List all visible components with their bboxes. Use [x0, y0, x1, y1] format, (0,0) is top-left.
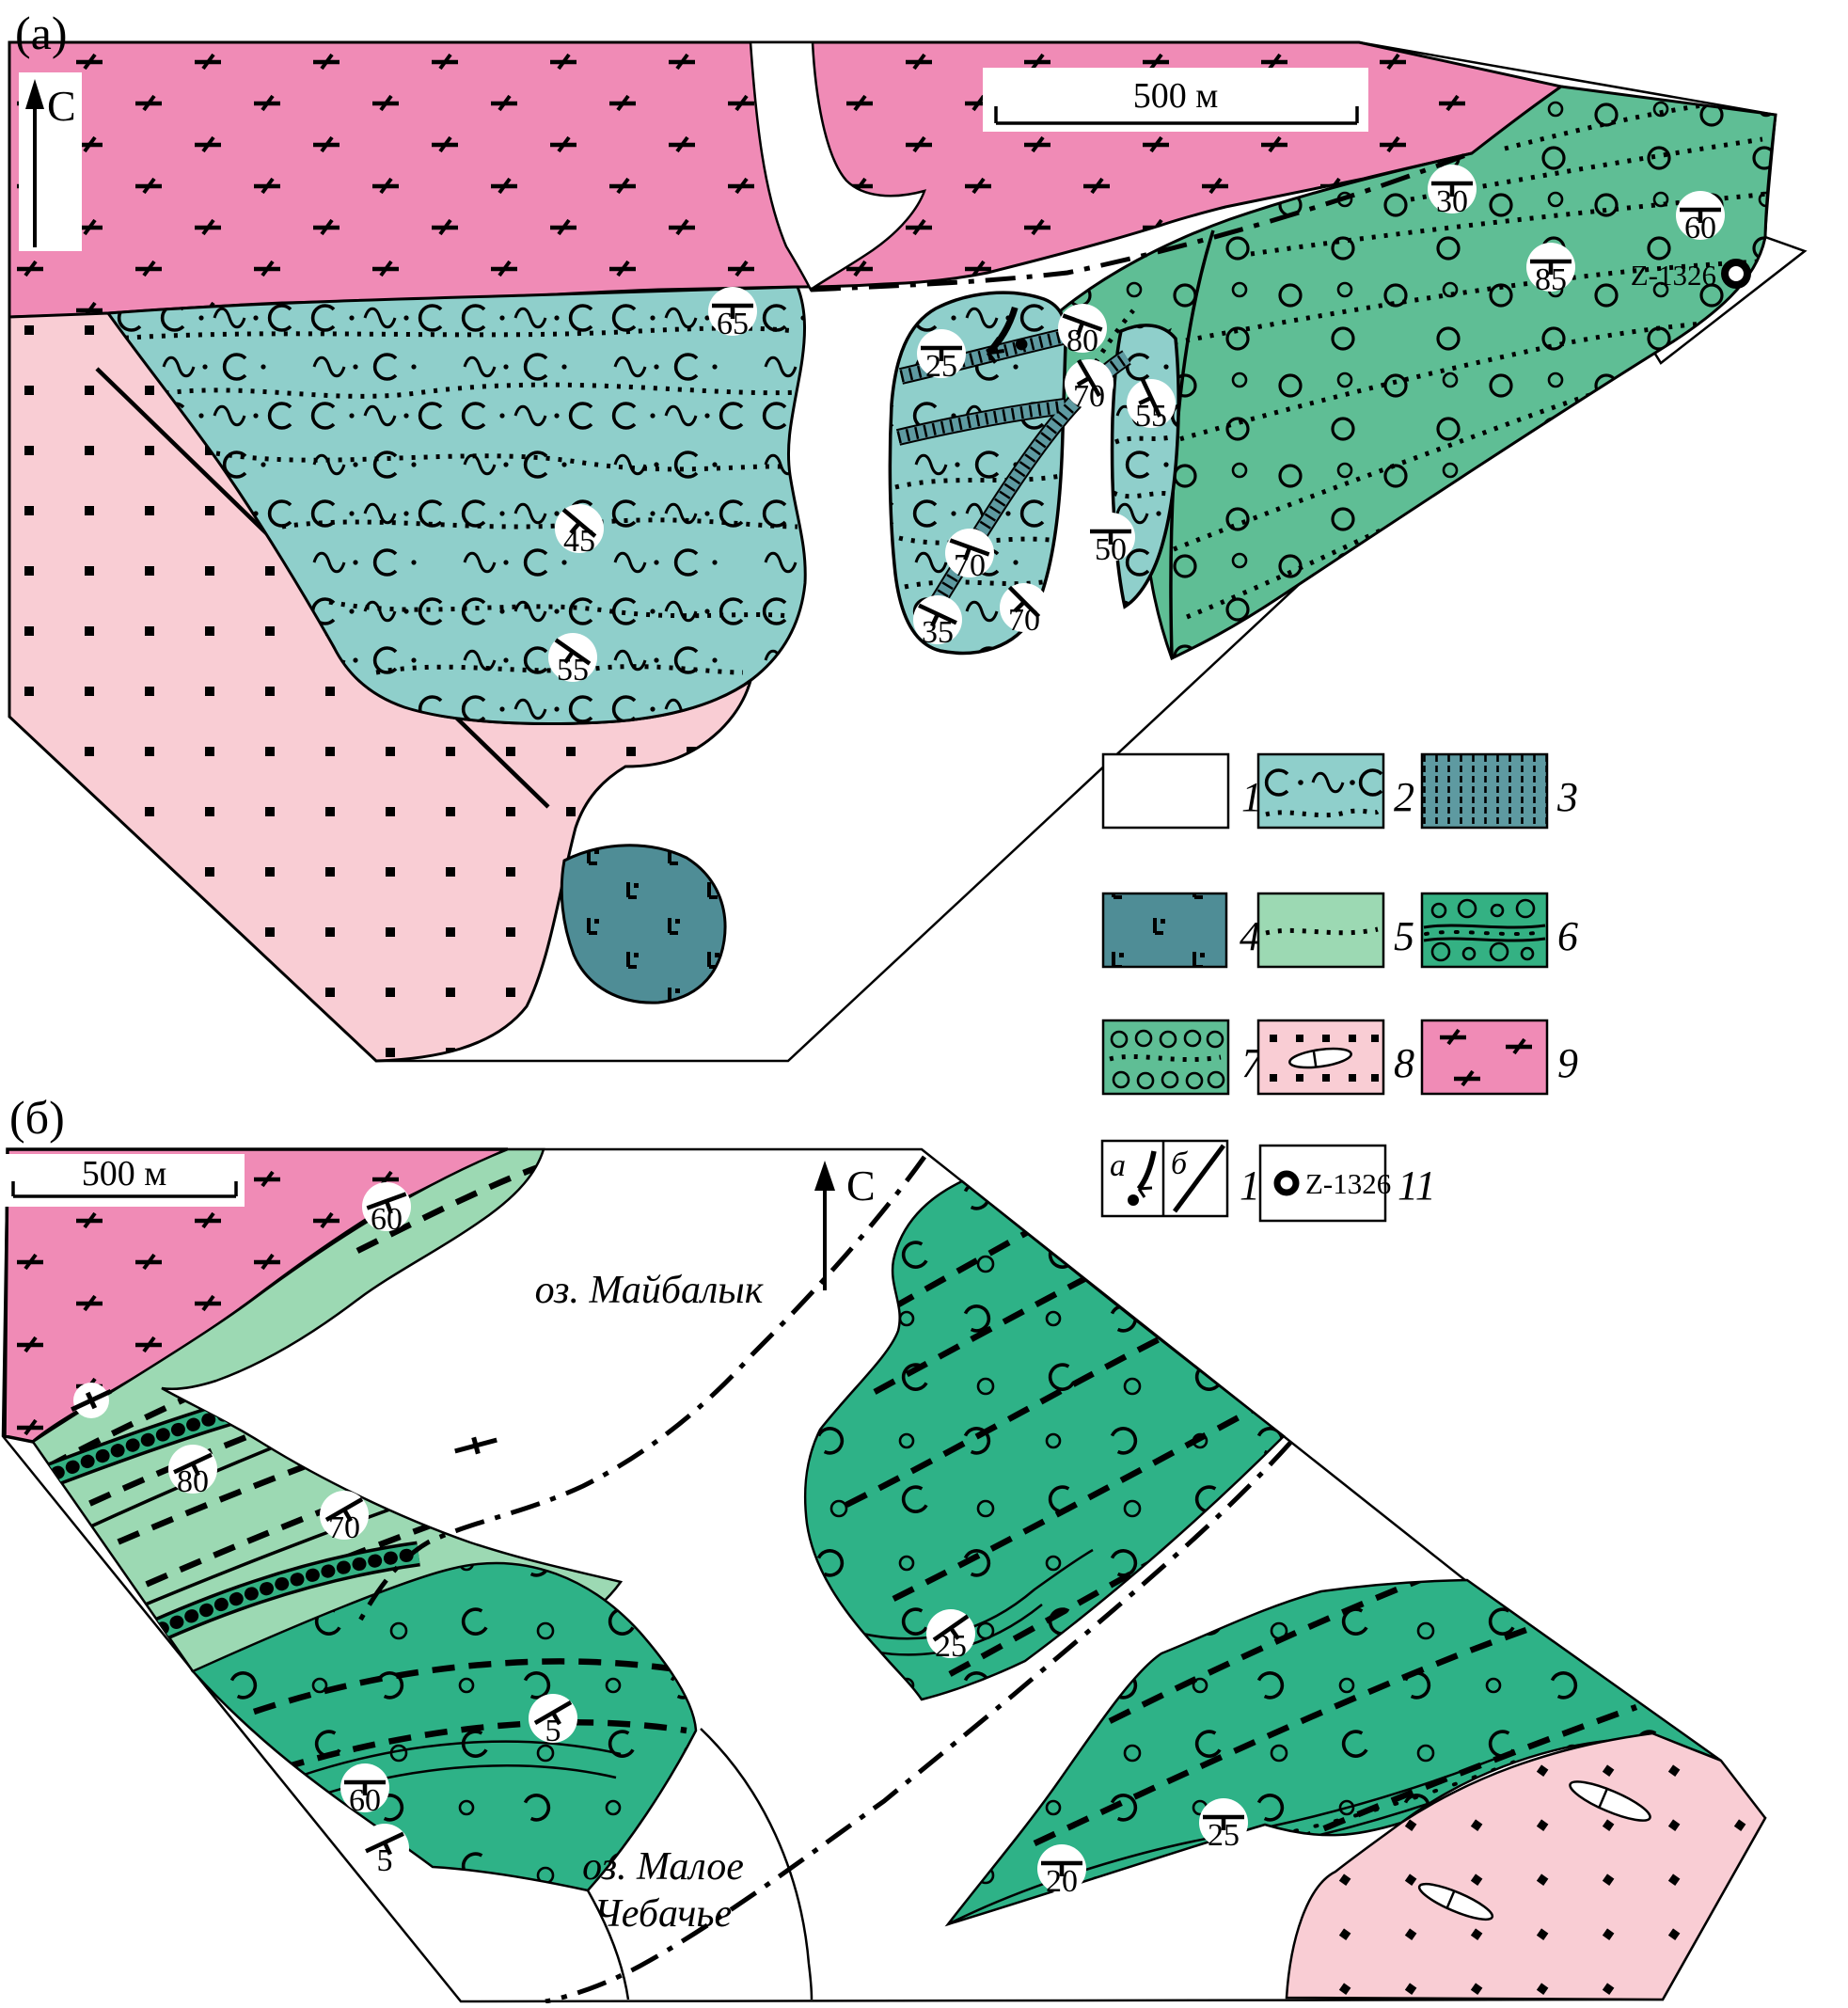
- svg-text:50: 50: [1095, 532, 1127, 567]
- legend-item-1: 1: [1103, 754, 1262, 828]
- legend-number-6: 6: [1557, 913, 1578, 959]
- legend-item-8: 8: [1258, 1020, 1414, 1094]
- legend-item-9: 9: [1422, 1020, 1578, 1094]
- lake-label-maloe-1: оз. Малое: [582, 1845, 744, 1889]
- svg-text:55: 55: [1135, 399, 1167, 434]
- svg-text:80: 80: [177, 1464, 209, 1499]
- geologic-map-figure: Z-1326 С 500 м (a) 652580705545555070357…: [0, 0, 1848, 2003]
- svg-text:25: 25: [1208, 1818, 1240, 1853]
- scale-label-b: 500 м: [82, 1154, 167, 1194]
- legend-number-5: 5: [1394, 913, 1414, 959]
- svg-text:65: 65: [717, 307, 749, 341]
- svg-text:70: 70: [954, 548, 986, 583]
- panel-label-a: (a): [15, 7, 68, 59]
- legend-number-2: 2: [1394, 774, 1414, 820]
- lake-label-maloe-2: Чебачье: [594, 1892, 732, 1936]
- panel-b: С 500 м (б) оз. Майбалык оз. Малое Чебач…: [3, 1091, 1765, 2001]
- svg-text:5: 5: [377, 1843, 393, 1878]
- legend-item-2: 2: [1258, 754, 1414, 828]
- legend-number-8: 8: [1394, 1040, 1414, 1086]
- legend-item-3: 3: [1422, 754, 1578, 828]
- svg-text:35: 35: [922, 615, 954, 650]
- svg-text:5: 5: [545, 1714, 561, 1748]
- legend-item-10: а б 10: [1102, 1141, 1281, 1216]
- legend-sub-b: б: [1171, 1146, 1189, 1181]
- lake-label-maybalyk: оз. Майбалык: [535, 1269, 764, 1312]
- svg-text:45: 45: [563, 524, 595, 559]
- legend-sample-label: Z-1326: [1305, 1167, 1391, 1200]
- legend-item-6: 6: [1422, 893, 1578, 967]
- svg-text:25: 25: [935, 1629, 967, 1664]
- legend-item-7: 7: [1103, 1020, 1264, 1094]
- sample-ring-icon: [1277, 1174, 1296, 1193]
- svg-text:85: 85: [1535, 262, 1567, 297]
- legend-item-5: 5: [1258, 893, 1414, 967]
- svg-text:70: 70: [328, 1510, 360, 1545]
- legend-number-9: 9: [1557, 1040, 1578, 1086]
- north-label-a: С: [47, 82, 76, 130]
- svg-text:20: 20: [1046, 1864, 1078, 1899]
- svg-text:55: 55: [557, 653, 589, 688]
- svg-text:80: 80: [1066, 324, 1098, 358]
- scale-label-a: 500 м: [1133, 76, 1219, 116]
- svg-text:60: 60: [371, 1202, 403, 1237]
- svg-text:60: 60: [349, 1783, 381, 1818]
- legend-number-4: 4: [1240, 913, 1260, 959]
- scale-bar-b: 500 м: [5, 1154, 245, 1207]
- svg-text:70: 70: [1008, 603, 1040, 638]
- legend-number-3: 3: [1556, 774, 1578, 820]
- legend: 1 2 3 4 5 6: [1102, 754, 1578, 1221]
- sample-marker: Z-1326: [1631, 259, 1747, 292]
- north-arrow-a: С: [19, 72, 82, 251]
- svg-text:60: 60: [1684, 211, 1716, 245]
- svg-text:25: 25: [925, 349, 957, 384]
- north-label-b: С: [846, 1162, 876, 1210]
- legend-item-11: Z-1326 11: [1260, 1146, 1436, 1221]
- svg-text:70: 70: [1073, 379, 1105, 414]
- legend-sub-a: а: [1110, 1148, 1126, 1183]
- sample-label: Z-1326: [1631, 259, 1716, 292]
- legend-item-4: 4: [1103, 893, 1260, 967]
- panel-label-b: (б): [9, 1091, 65, 1144]
- scale-bar-a: 500 м: [983, 68, 1368, 132]
- legend-number-11: 11: [1398, 1162, 1436, 1209]
- svg-text:30: 30: [1436, 184, 1468, 219]
